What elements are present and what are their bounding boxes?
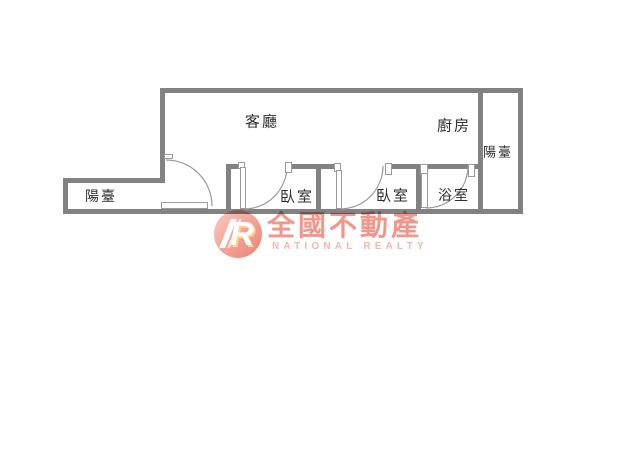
door-arcs-layer [0,0,638,460]
floorplan-canvas: 客廳廚房陽臺陽臺臥室臥室浴室 R 全國不動產 NATIONAL REALTY [0,0,638,460]
door-leaf-entry [161,202,208,209]
room-label-bedroom-1: 臥室 [280,186,314,207]
room-label-bathroom: 浴室 [438,185,470,205]
room-label-kitchen: 廚房 [437,115,471,136]
door-jamb-bed2-right [385,163,392,175]
door-leaf-bath [421,173,428,208]
room-label-living-room: 客廳 [245,111,279,132]
room-label-balcony-left: 陽臺 [85,186,117,206]
door-jamb-entry-top [164,154,173,159]
room-label-bedroom-2: 臥室 [376,185,410,206]
door-leaf-bed1 [240,167,246,209]
door-jamb-bed1-right [285,162,292,173]
door-arc-entry [166,160,212,206]
door-jamb-bath-right [468,164,475,177]
door-leaf-bed2 [336,170,342,209]
room-label-balcony-right: 陽臺 [483,142,513,161]
